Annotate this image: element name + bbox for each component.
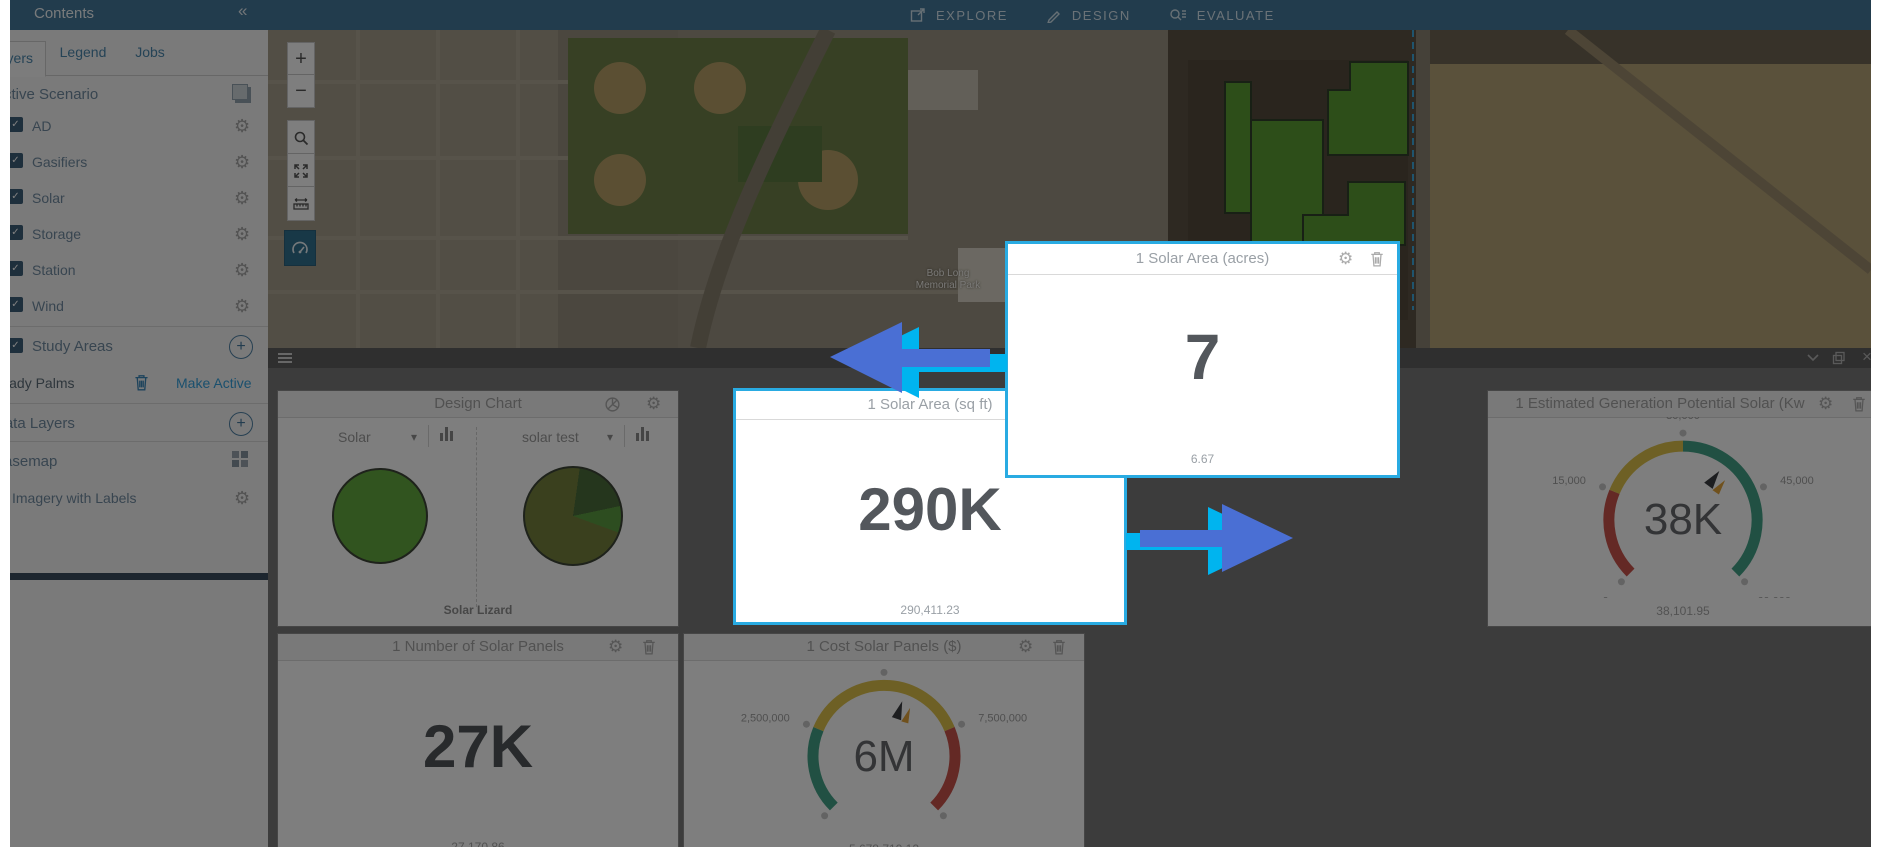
acres-exact-value: 6.67 <box>1008 452 1397 466</box>
frame-right <box>1871 0 1877 852</box>
acres-trash-icon[interactable] <box>1370 251 1384 267</box>
solar-area-acres-card: 1 Solar Area (acres) ⚙ 7 6.67 <box>1005 241 1400 478</box>
sqft-exact-value: 290,411.23 <box>736 603 1124 617</box>
screen: Contents « EXPLORE DESIGN EVALUATE Layer… <box>0 0 1877 852</box>
acres-gear-icon[interactable]: ⚙ <box>1338 250 1353 267</box>
frame-left <box>0 0 10 852</box>
acres-value: 7 <box>1008 320 1397 394</box>
frame-bottom <box>0 847 1877 852</box>
sqft-value: 290K <box>736 475 1124 544</box>
acres-card-header: 1 Solar Area (acres) ⚙ <box>1008 244 1397 275</box>
